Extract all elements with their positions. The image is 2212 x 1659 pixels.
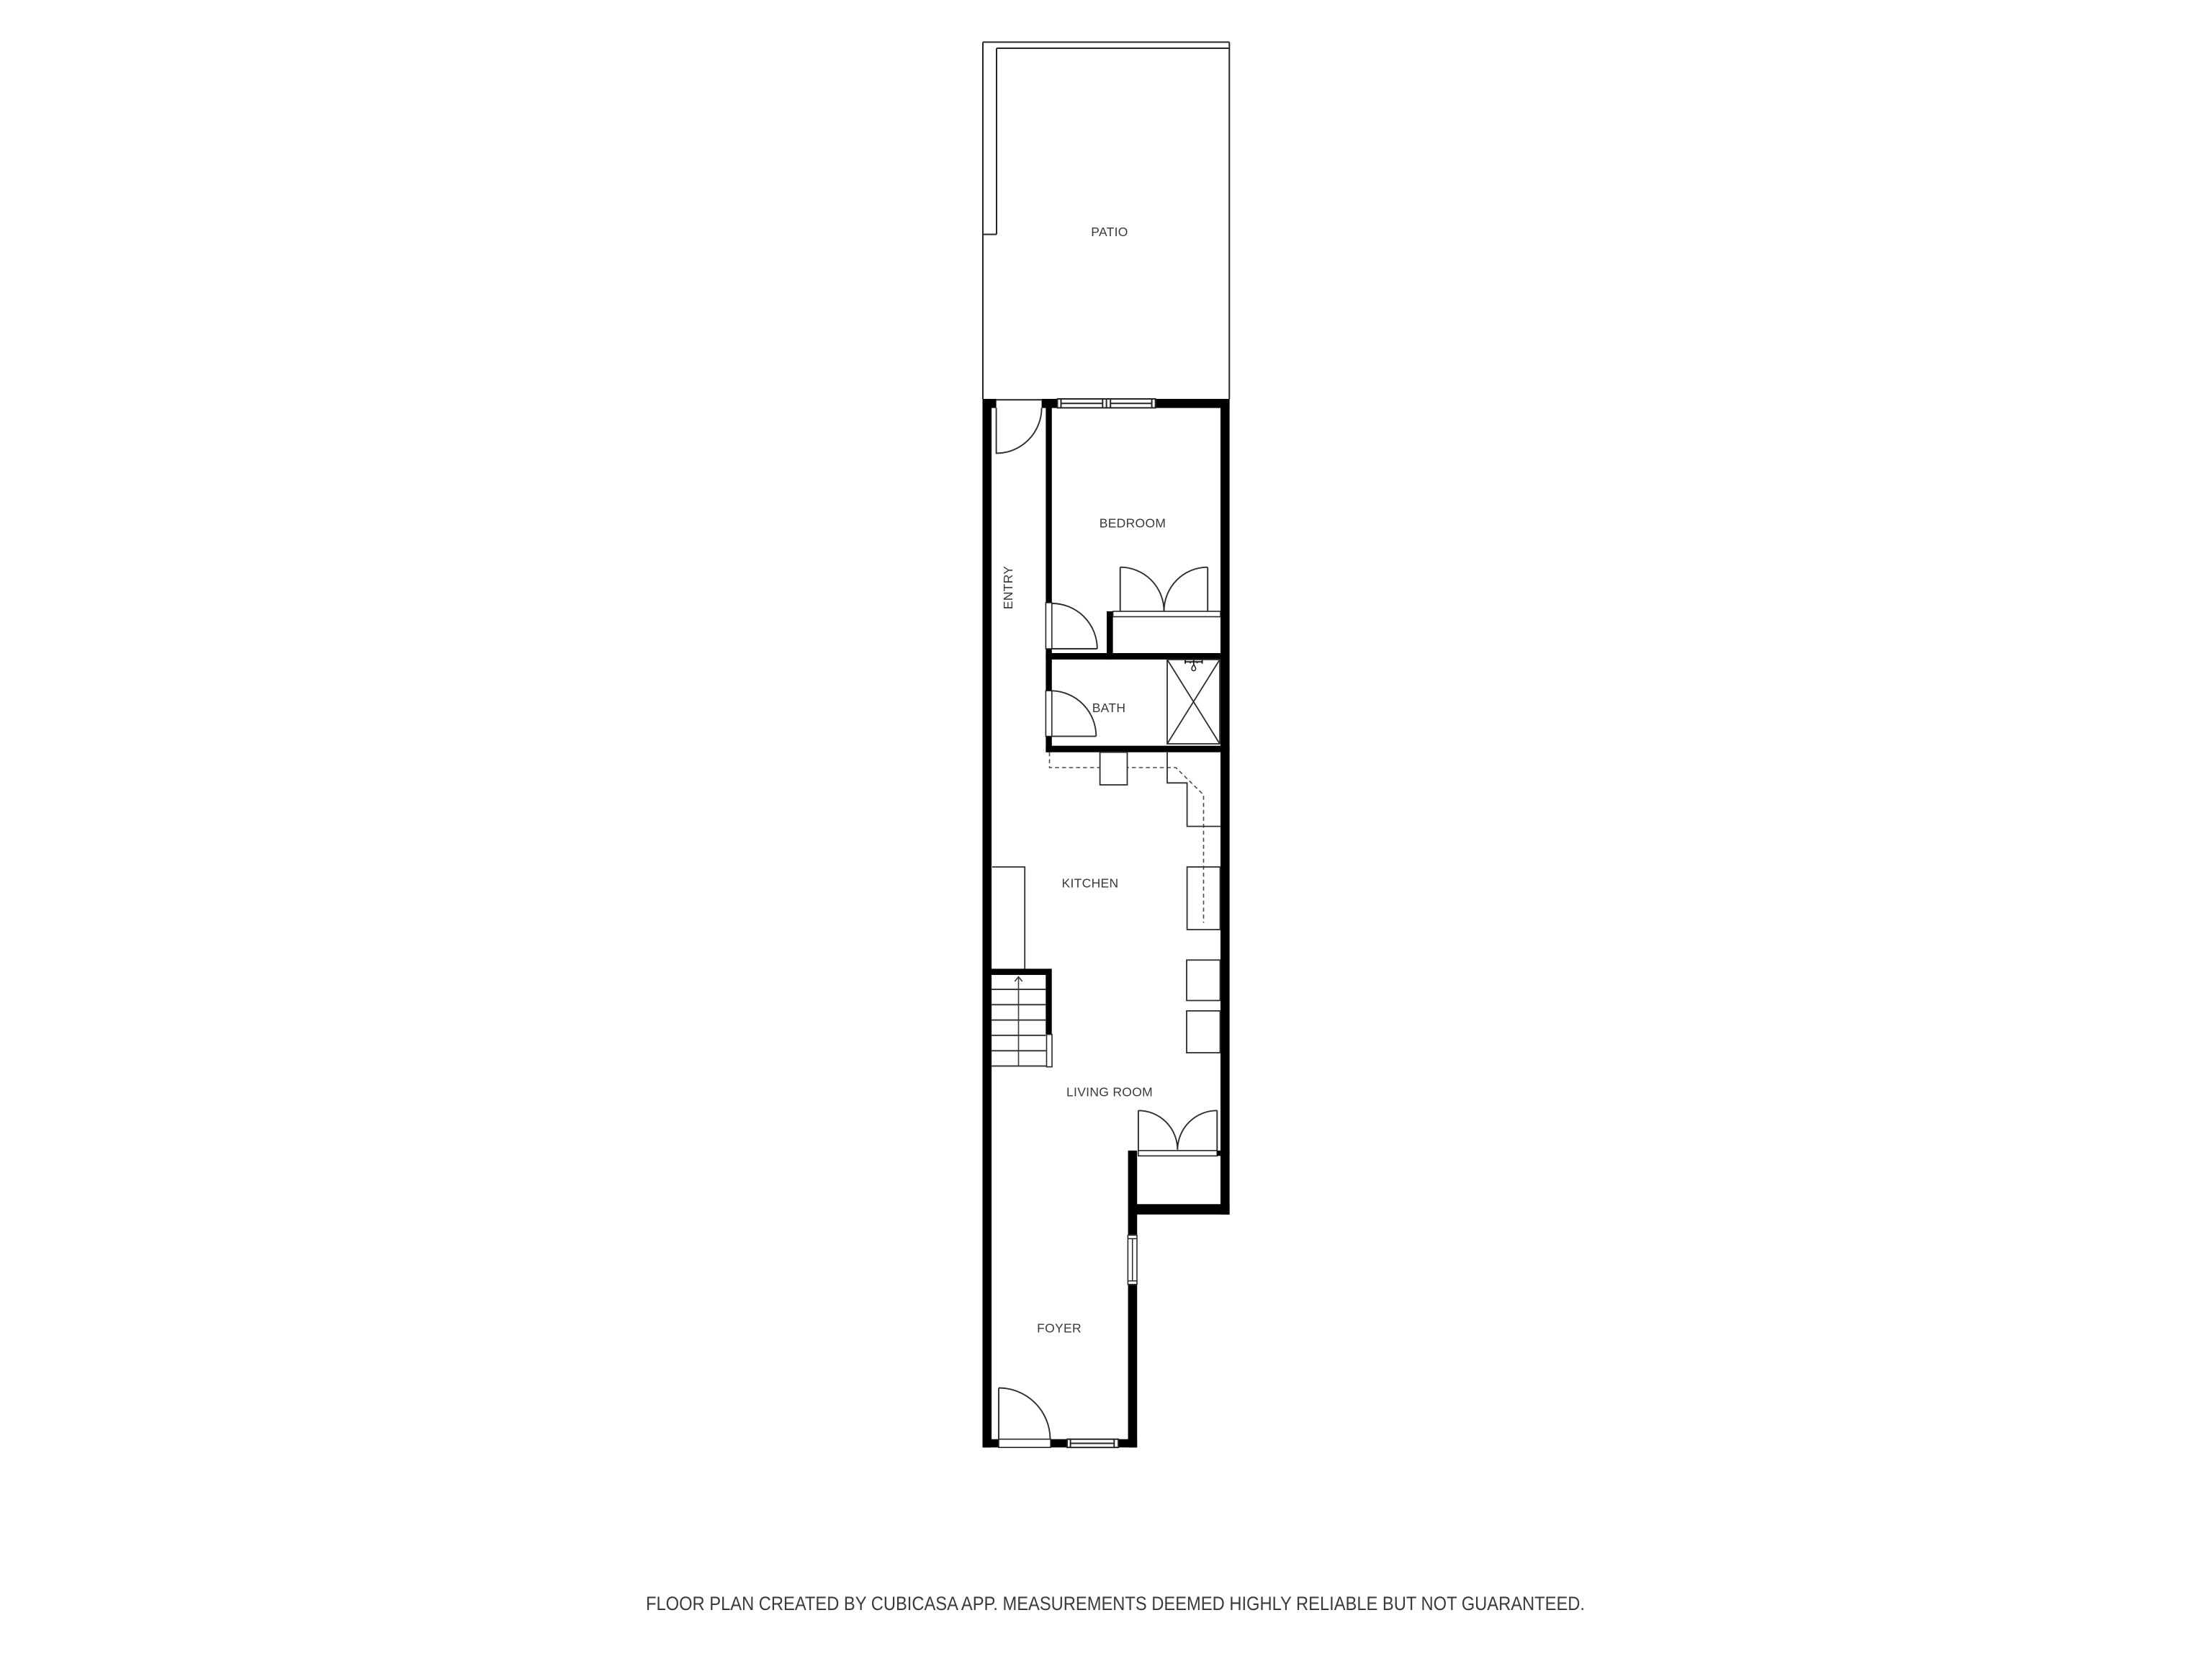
svg-text:BATH: BATH xyxy=(1092,701,1126,715)
svg-text:KITCHEN: KITCHEN xyxy=(1062,876,1119,891)
svg-text:ENTRY: ENTRY xyxy=(1001,566,1015,610)
svg-text:FLOOR PLAN CREATED BY CUBICASA: FLOOR PLAN CREATED BY CUBICASA APP. MEAS… xyxy=(646,1593,1585,1614)
svg-text:LIVING ROOM: LIVING ROOM xyxy=(1066,1085,1153,1100)
svg-text:PATIO: PATIO xyxy=(1091,225,1128,239)
svg-text:BEDROOM: BEDROOM xyxy=(1100,516,1166,531)
svg-text:FOYER: FOYER xyxy=(1037,1321,1082,1336)
